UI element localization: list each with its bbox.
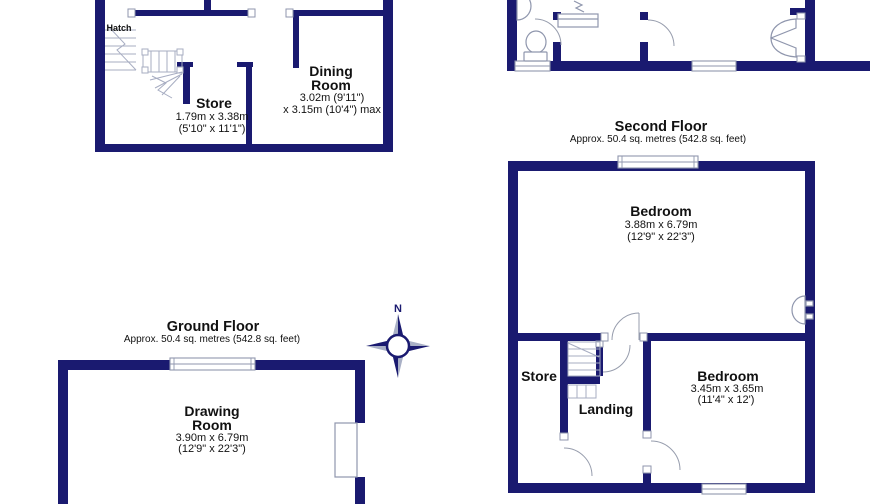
wall-segment [640, 12, 648, 20]
wall-segment [507, 61, 870, 71]
compass-north-label: N [394, 303, 402, 315]
dining-room-label: Dining Room 3.02m (9'11") x 3.15m (10'4"… [283, 63, 381, 116]
door-jamb [248, 9, 255, 17]
window [618, 156, 698, 168]
wall-segment [204, 0, 211, 11]
plan-first-floor-left: Hatch Store 1.79m x 3.38m (5'10" x 11'1"… [95, 0, 393, 152]
door-jamb [601, 333, 608, 341]
bedroom1-label: Bedroom 3.88m x 6.79m (12'9" x 22'3") [625, 203, 698, 243]
staircase [105, 25, 183, 98]
room-dim-ft: (12'9" x 22'3") [178, 443, 246, 455]
door-arc [648, 20, 674, 46]
wall-segment [640, 333, 805, 341]
plan-first-floor-right [507, 0, 870, 71]
window [702, 484, 746, 494]
sink-icon [517, 0, 531, 20]
room-dim-m: 1.79m x 3.38m [176, 111, 249, 123]
stair-newel [142, 49, 148, 55]
door-jamb [640, 333, 647, 341]
door-jamb [128, 9, 135, 17]
stair-flight [568, 385, 596, 398]
window [692, 61, 736, 71]
wall-segment [293, 10, 383, 16]
stair-treads [151, 51, 175, 72]
room-dim-m: 3.88m x 6.79m [625, 219, 698, 231]
wall-segment [246, 62, 252, 144]
door-arc [651, 441, 680, 470]
door-arc [564, 448, 592, 476]
chimney-breast [335, 423, 357, 477]
stair-flight [143, 51, 182, 72]
stair-treads [105, 30, 136, 70]
wall-segment [805, 161, 815, 493]
wall-segment [508, 161, 518, 493]
floor-plan-canvas: Hatch Store 1.79m x 3.38m (5'10" x 11'1"… [0, 0, 870, 504]
floor-title: Ground Floor [167, 319, 260, 335]
door-jamb [797, 56, 805, 62]
stair-newel [142, 67, 148, 73]
door-jamb [643, 431, 651, 438]
door-jamb [286, 9, 293, 17]
wall-segment [560, 341, 568, 440]
floor-area-label: Approx. 50.4 sq. metres (542.8 sq. feet) [570, 134, 746, 145]
door-arc [612, 313, 639, 340]
bedroom2-label: Bedroom 3.45m x 3.65m (11'4" x 12') [691, 368, 764, 406]
wall-segment [383, 0, 393, 152]
wall-segment [640, 42, 648, 62]
zigzag-symbol [574, 1, 584, 12]
window [170, 358, 255, 370]
wall-segment [508, 483, 815, 493]
wall-segment [355, 477, 365, 504]
bifold-door [771, 13, 805, 62]
wall-segment [518, 333, 608, 341]
door-arc [603, 345, 630, 372]
plan-ground-floor: Ground Floor Approx. 50.4 sq. metres (54… [58, 319, 365, 504]
wall-segment [643, 473, 651, 483]
stair-newel [177, 49, 183, 55]
room-dim-ft: x 3.15m (10'4") max [283, 104, 381, 116]
staircase [568, 342, 600, 398]
wall-segment [133, 10, 248, 16]
door-jamb [560, 433, 568, 440]
wall-segment [293, 16, 299, 68]
wall-segment [553, 42, 561, 62]
wall-group [507, 0, 870, 71]
wall-segment [95, 144, 393, 152]
store-label: Store [521, 368, 557, 384]
wall-segment [58, 360, 68, 504]
room-dim-ft: (12'9" x 22'3") [627, 231, 695, 243]
room-name: Bedroom [697, 368, 758, 384]
wall-segment [507, 0, 517, 71]
landing-label: Landing [579, 401, 633, 417]
room-dim-ft: (11'4" x 12') [698, 394, 755, 406]
window [515, 61, 550, 71]
room-name: Store [196, 95, 232, 111]
floor-area-label: Approx. 50.4 sq. metres (542.8 sq. feet) [124, 334, 300, 345]
door-jamb [797, 13, 805, 19]
compass-rose-icon: N [366, 303, 430, 378]
floor-plan-sheet: Hatch Store 1.79m x 3.38m (5'10" x 11'1"… [0, 0, 870, 504]
wall-segment [183, 62, 190, 104]
furniture-icon [558, 1, 598, 27]
room-dim-m: 3.02m (9'11") [300, 92, 365, 104]
wall-segment [95, 0, 105, 152]
wall-segment [643, 341, 651, 431]
plan-second-floor: Second Floor Approx. 50.4 sq. metres (54… [508, 119, 815, 494]
stair-break-line [568, 343, 599, 357]
door-jamb [643, 466, 651, 473]
room-dim-ft: (5'10" x 11'1") [179, 123, 246, 135]
wall-segment [560, 376, 600, 384]
hatch-label: Hatch [106, 23, 131, 33]
room-name: Bedroom [630, 203, 691, 219]
wall-segment [355, 360, 365, 423]
drawing-room-label: Drawing Room 3.90m x 6.79m (12'9" x 22'3… [176, 403, 249, 455]
room-name: Room [192, 417, 232, 433]
stair-treads [568, 349, 600, 370]
toilet-icon [524, 31, 547, 61]
wall-segment [805, 0, 815, 61]
floor-title: Second Floor [615, 119, 708, 135]
room-name: Room [311, 77, 351, 93]
